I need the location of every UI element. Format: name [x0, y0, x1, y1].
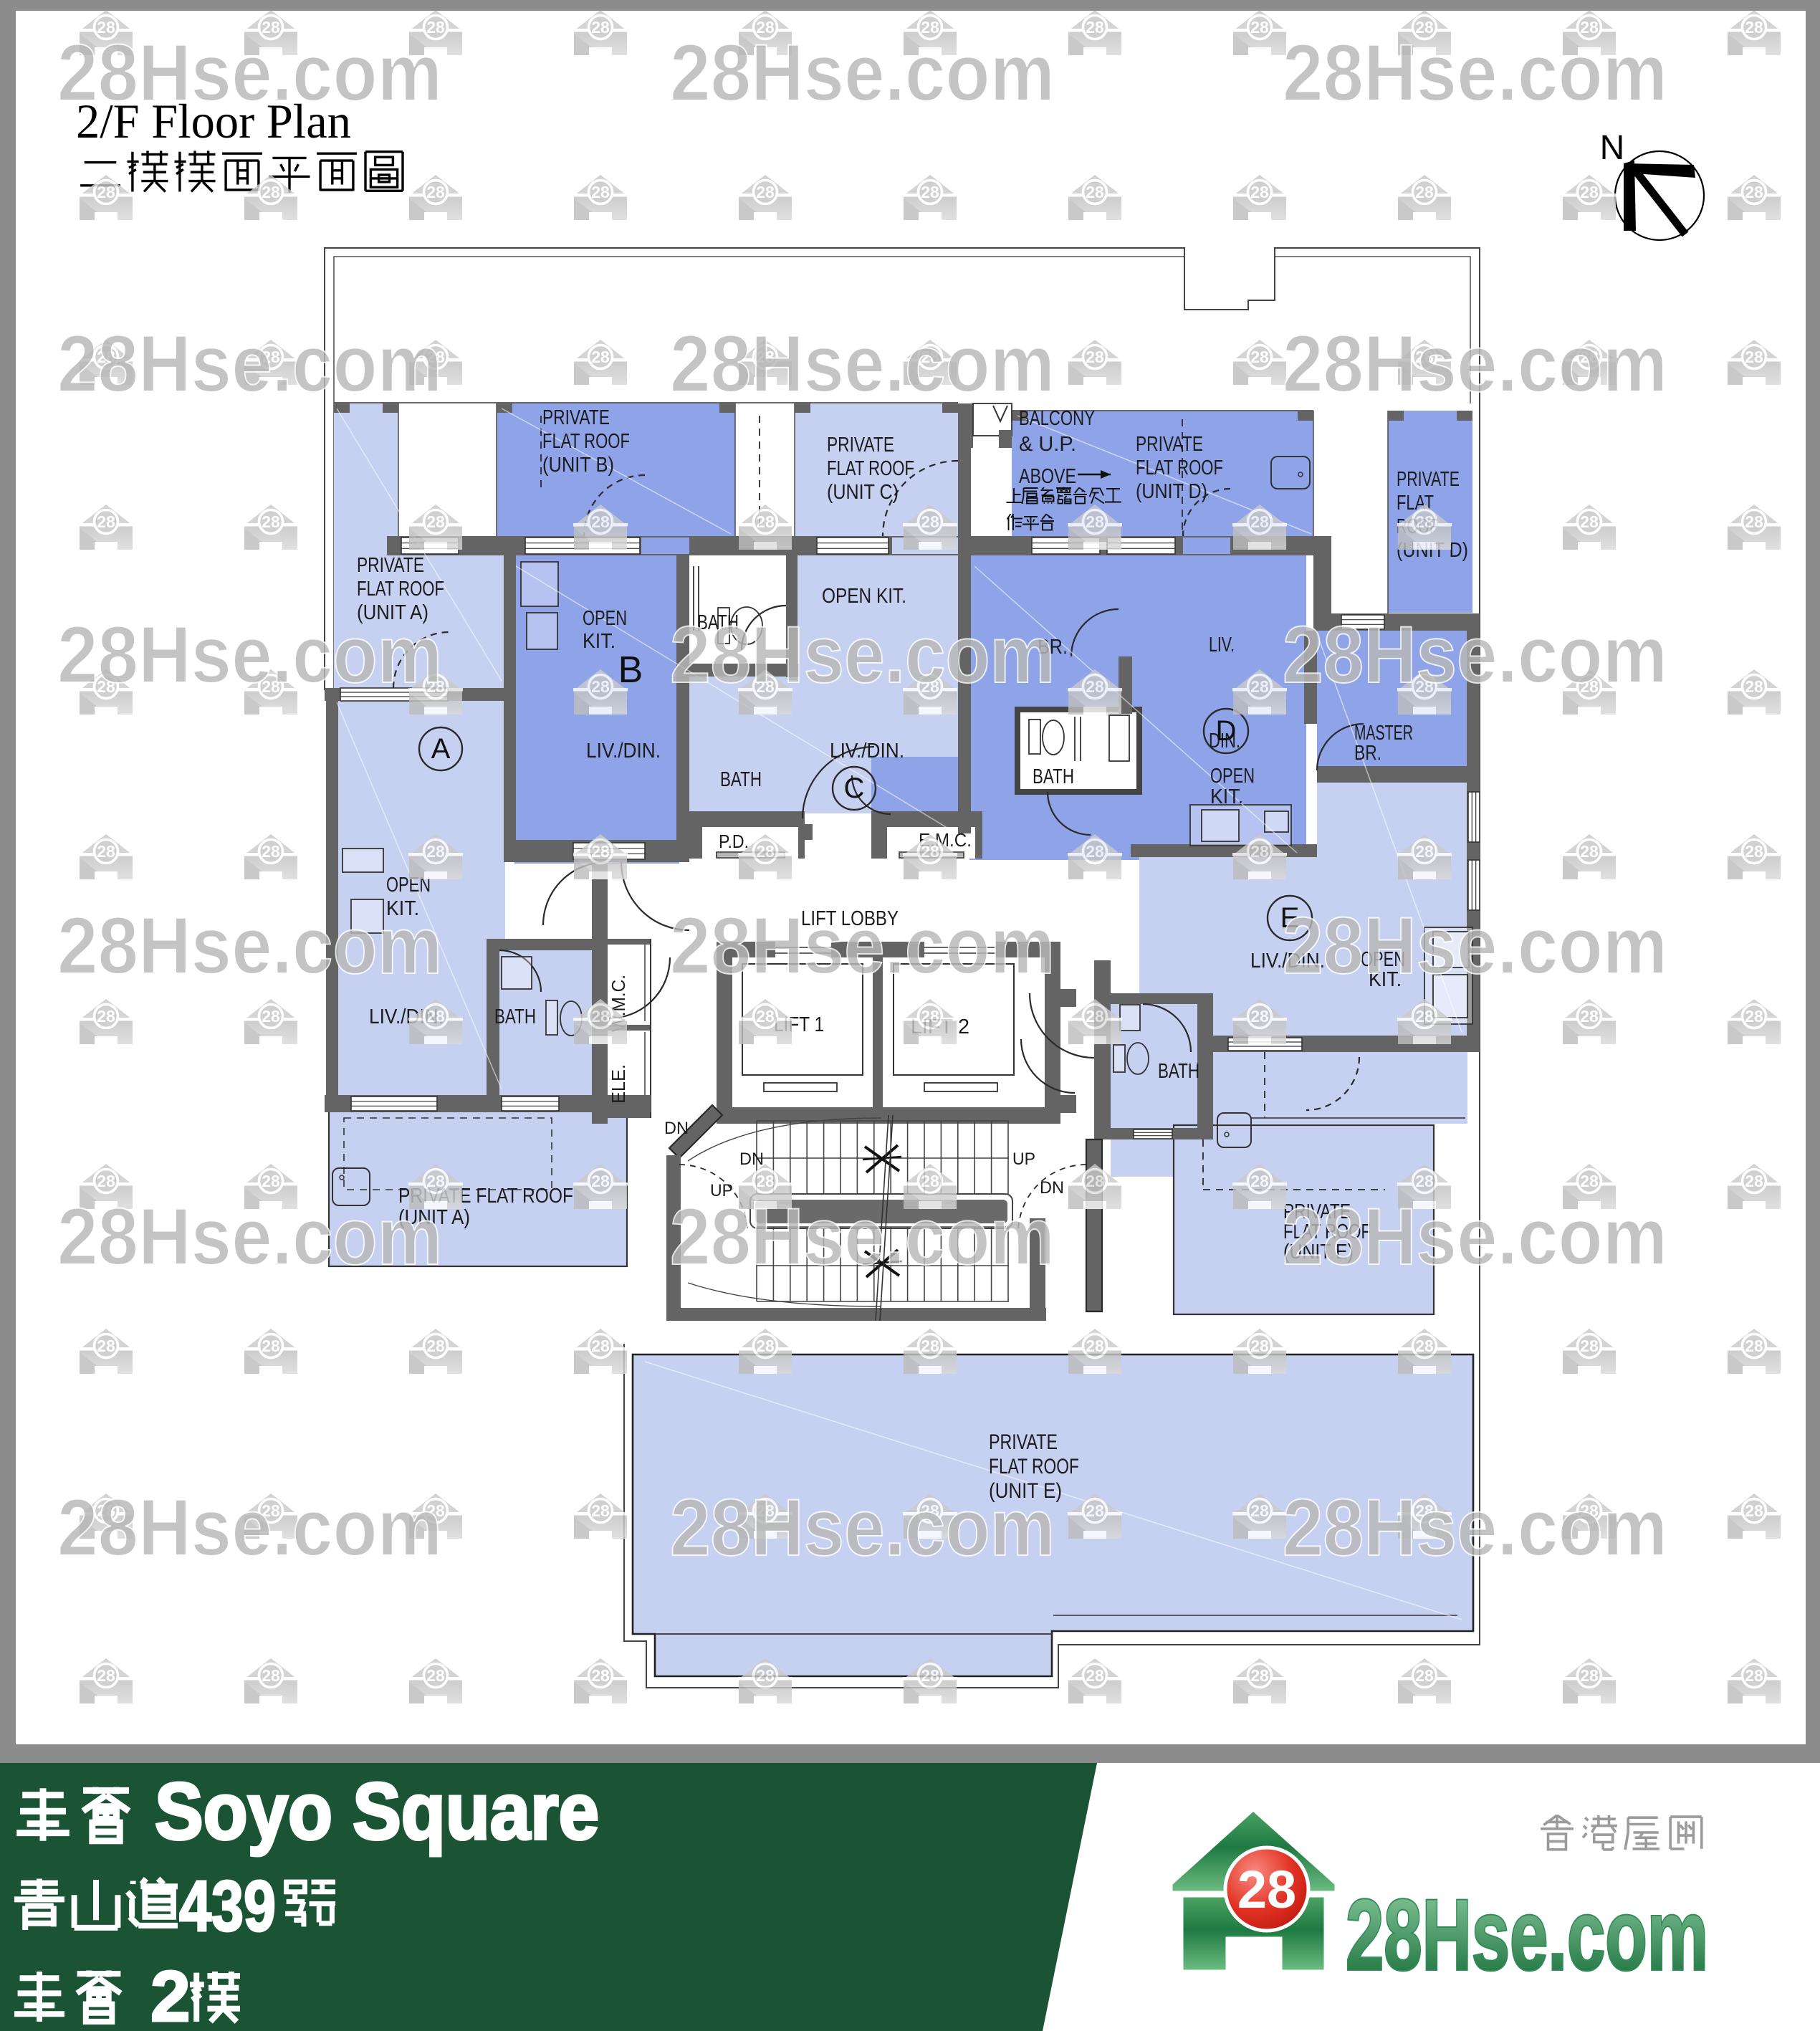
- svg-text:28Hse.com: 28Hse.com: [1346, 1878, 1708, 1991]
- svg-text:439: 439: [179, 1866, 276, 1946]
- svg-text:Soyo Square: Soyo Square: [155, 1767, 599, 1856]
- svg-text:28: 28: [1237, 1860, 1296, 1919]
- svg-text:2: 2: [150, 1956, 191, 2031]
